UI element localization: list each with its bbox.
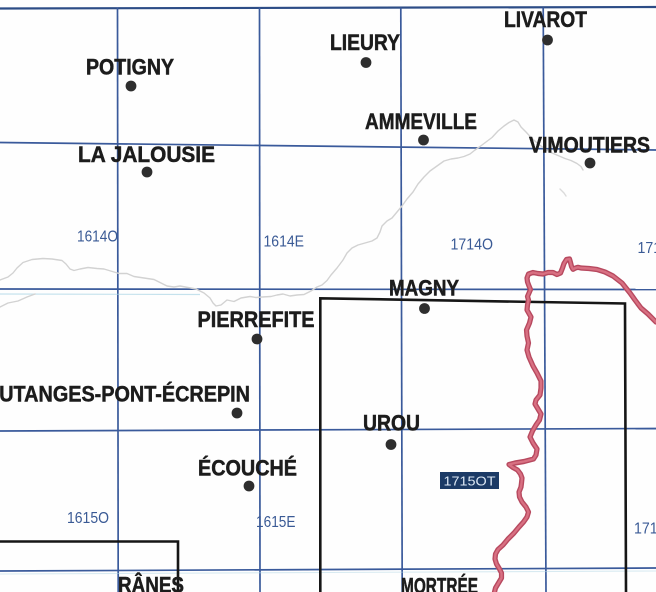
svg-text:LA JALOUSIE: LA JALOUSIE (78, 142, 215, 167)
svg-text:1614E: 1614E (264, 234, 305, 251)
svg-text:PIERREFITE: PIERREFITE (198, 307, 315, 332)
svg-text:UROU: UROU (363, 411, 420, 436)
svg-text:MORTRÉE: MORTRÉE (401, 574, 478, 592)
svg-text:VIMOUTIERS: VIMOUTIERS (529, 133, 650, 158)
svg-text:PUTANGES-PONT-ÉCREPIN: PUTANGES-PONT-ÉCREPIN (0, 382, 250, 407)
svg-text:RÂNES: RÂNES (118, 573, 184, 592)
svg-text:1715E: 1715E (638, 240, 656, 257)
svg-text:ÉCOUCHÉ: ÉCOUCHÉ (198, 456, 297, 481)
svg-text:MAGNY: MAGNY (389, 276, 459, 301)
svg-text:1615O: 1615O (67, 510, 109, 527)
svg-text:AMMEVILLE: AMMEVILLE (365, 109, 477, 134)
svg-text:LIEURY: LIEURY (330, 30, 400, 55)
svg-text:LIVAROT: LIVAROT (504, 7, 588, 32)
svg-text:1714O: 1714O (451, 237, 494, 254)
svg-text:1715OT: 1715OT (444, 475, 496, 489)
svg-text:1715E: 1715E (634, 521, 656, 538)
svg-text:1614O: 1614O (77, 229, 118, 246)
svg-text:POTIGNY: POTIGNY (86, 55, 174, 80)
svg-text:1615E: 1615E (256, 514, 296, 531)
